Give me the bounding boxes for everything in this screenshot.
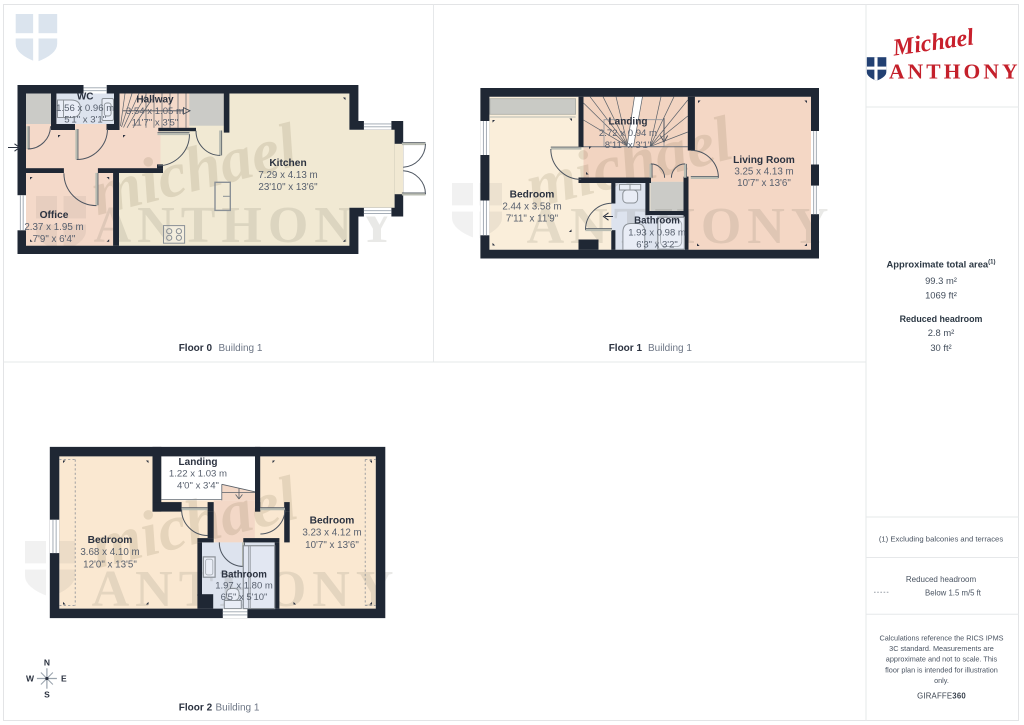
svg-text:7'9" x 6'4": 7'9" x 6'4" [33, 234, 76, 245]
svg-text:6'3" x 3'2": 6'3" x 3'2" [636, 239, 678, 250]
svg-text:Floor 2: Floor 2 [179, 703, 213, 714]
svg-text:3.23 x 4.12 m: 3.23 x 4.12 m [302, 528, 361, 539]
svg-text:5'1" x 3'1": 5'1" x 3'1" [64, 115, 106, 126]
svg-text:11'7" x 3'5": 11'7" x 3'5" [132, 118, 179, 129]
svg-text:1.93 x 0.98 m: 1.93 x 0.98 m [628, 228, 686, 239]
svg-text:Bedroom: Bedroom [310, 515, 355, 526]
svg-text:3.54 x 1.05 m: 3.54 x 1.05 m [126, 106, 184, 117]
svg-text:floor plan is intended for ill: floor plan is intended for illustration [885, 665, 998, 674]
svg-text:2.37 x 1.95 m: 2.37 x 1.95 m [24, 222, 83, 233]
svg-text:Bathroom: Bathroom [221, 569, 267, 580]
svg-text:Building 1: Building 1 [648, 343, 692, 354]
svg-text:Building 1: Building 1 [216, 703, 260, 714]
svg-text:7.29 x 4.13 m: 7.29 x 4.13 m [258, 170, 317, 181]
svg-text:10'7" x 13'6": 10'7" x 13'6" [737, 178, 791, 189]
svg-text:Landing: Landing [609, 116, 648, 127]
svg-text:Bathroom: Bathroom [634, 216, 680, 227]
svg-text:6'5" x 5'10": 6'5" x 5'10" [221, 592, 268, 603]
svg-text:GIRAFFE360: GIRAFFE360 [917, 691, 966, 700]
svg-text:4'0" x 3'4": 4'0" x 3'4" [177, 480, 219, 491]
svg-text:(1) Excluding balconies and te: (1) Excluding balconies and terraces [879, 535, 1004, 544]
svg-text:Reduced headroom: Reduced headroom [900, 314, 983, 324]
svg-text:W: W [26, 674, 35, 684]
svg-text:23'10" x 13'6": 23'10" x 13'6" [258, 182, 318, 193]
svg-text:30 ft²: 30 ft² [930, 342, 951, 353]
svg-text:1069 ft²: 1069 ft² [925, 290, 957, 301]
svg-text:Landing: Landing [179, 457, 218, 468]
svg-text:7'11" x 11'9": 7'11" x 11'9" [506, 214, 559, 225]
svg-text:2.44 x 3.58 m: 2.44 x 3.58 m [502, 202, 561, 213]
svg-text:N: N [44, 657, 50, 667]
svg-text:2.72 x 0.94 m: 2.72 x 0.94 m [599, 128, 657, 139]
svg-text:Building 1: Building 1 [219, 343, 263, 354]
svg-text:10'7" x 13'6": 10'7" x 13'6" [305, 540, 359, 551]
svg-text:ANTHONY: ANTHONY [889, 60, 1021, 84]
svg-text:Office: Office [40, 210, 69, 221]
svg-text:approximate and not to scale.: approximate and not to scale. This [886, 655, 998, 664]
svg-text:1.22 x 1.03 m: 1.22 x 1.03 m [169, 469, 227, 480]
svg-text:S: S [44, 689, 50, 699]
svg-text:1.56 x 0.96 m: 1.56 x 0.96 m [56, 103, 114, 114]
svg-text:12'0" x 13'5": 12'0" x 13'5" [83, 559, 137, 570]
svg-text:Hallway: Hallway [136, 94, 174, 105]
svg-text:1.97 x 1.80 m: 1.97 x 1.80 m [215, 581, 273, 592]
svg-text:only.: only. [934, 676, 949, 685]
svg-text:3.25 x 4.13 m: 3.25 x 4.13 m [734, 167, 793, 178]
svg-text:8'11" x 3'1": 8'11" x 3'1" [605, 140, 652, 151]
svg-text:Approximate total area(1): Approximate total area(1) [887, 258, 996, 269]
svg-text:3C standard. Measurements are: 3C standard. Measurements are [889, 644, 994, 653]
svg-text:2.8 m²: 2.8 m² [928, 327, 955, 338]
svg-text:Reduced headroom: Reduced headroom [906, 575, 977, 584]
svg-text:Floor 0: Floor 0 [179, 343, 213, 354]
svg-text:Below 1.5 m/5 ft: Below 1.5 m/5 ft [925, 588, 982, 597]
svg-text:Michael: Michael [890, 24, 975, 61]
svg-text:99.3 m²: 99.3 m² [925, 275, 957, 286]
svg-text:Floor 1: Floor 1 [609, 343, 643, 354]
svg-text:Bedroom: Bedroom [510, 189, 555, 200]
svg-text:WC: WC [77, 92, 94, 103]
svg-text:Kitchen: Kitchen [269, 158, 306, 169]
svg-text:3.68 x 4.10 m: 3.68 x 4.10 m [80, 547, 139, 558]
svg-text:Living Room: Living Room [733, 155, 795, 166]
svg-text:Bedroom: Bedroom [88, 535, 133, 546]
svg-text:E: E [61, 674, 67, 684]
svg-text:Calculations reference the RIC: Calculations reference the RICS IPMS [879, 633, 1003, 642]
